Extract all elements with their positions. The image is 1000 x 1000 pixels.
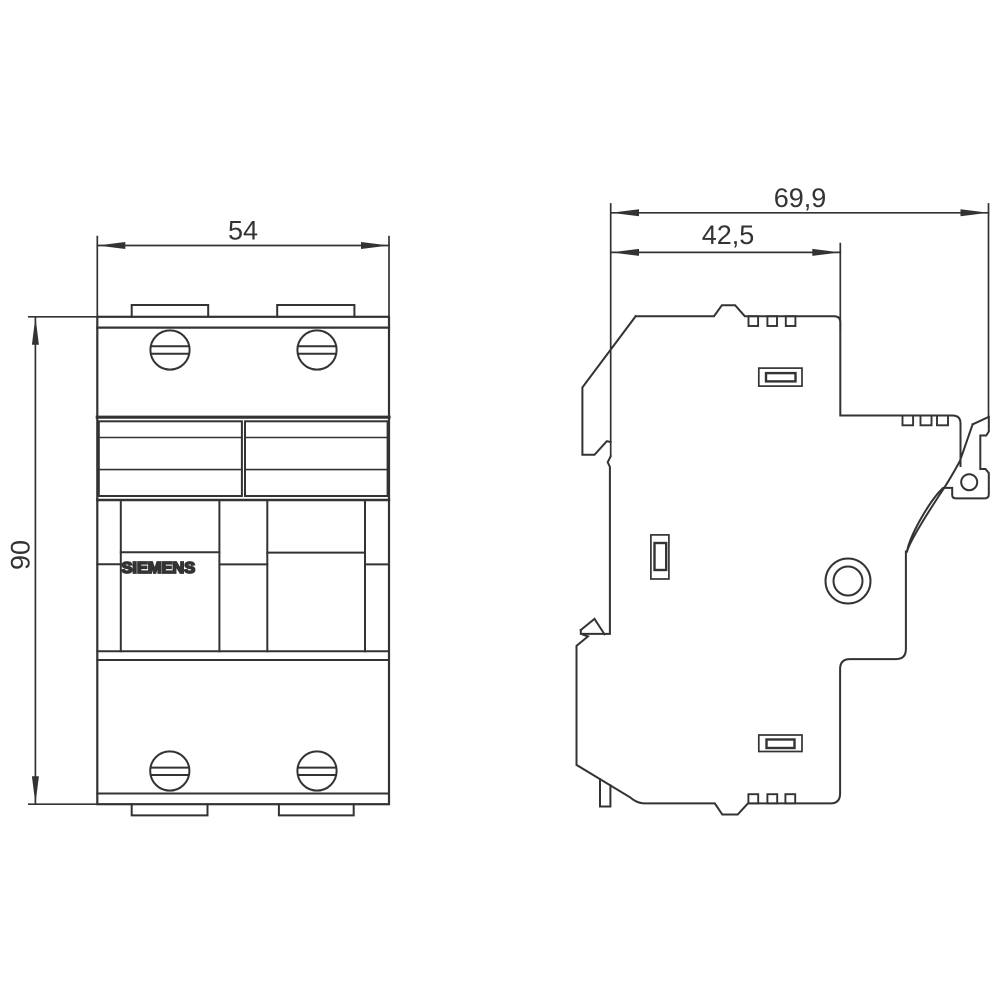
svg-text:90: 90 [6, 540, 36, 570]
svg-text:SIEMENS: SIEMENS [122, 560, 196, 577]
svg-text:54: 54 [228, 216, 258, 246]
svg-text:42,5: 42,5 [702, 220, 755, 250]
svg-text:69,9: 69,9 [774, 183, 827, 213]
